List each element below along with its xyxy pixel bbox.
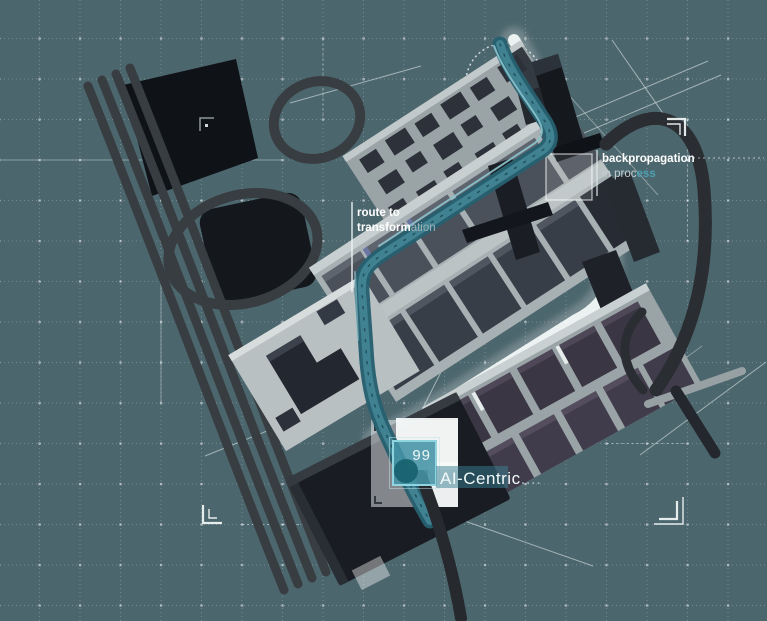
svg-text:in process: in process: [602, 168, 656, 180]
ai-centric-text: AI-Centric: [440, 469, 521, 488]
ai-centric-trail: ....: [521, 469, 542, 488]
svg-text:AI-Centric....: AI-Centric....: [440, 469, 541, 488]
map-canvas: 99 AI-Centric.... backpropagation in pro…: [0, 0, 767, 621]
ai-centric-label[interactable]: AI-Centric....: [436, 466, 541, 488]
badge-99[interactable]: 99: [390, 438, 440, 489]
route-line1: route to: [357, 207, 400, 219]
selection-box: [546, 154, 592, 200]
svg-text:transformation: transformation: [357, 222, 436, 234]
badge-value: 99: [412, 447, 431, 464]
backprop-line1: backpropagation: [602, 153, 695, 165]
